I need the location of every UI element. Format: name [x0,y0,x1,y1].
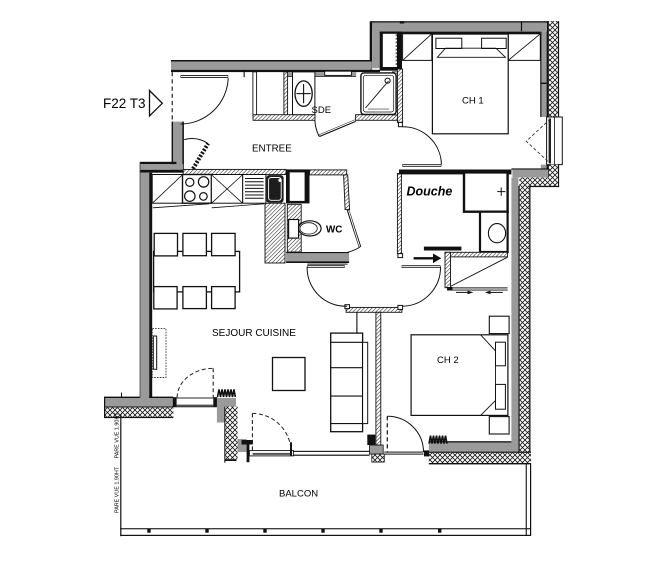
svg-text:PARE VUE 1.90HT: PARE VUE 1.90HT [115,412,121,459]
svg-text:F22 T3: F22 T3 [103,96,146,111]
svg-text:CH 2: CH 2 [437,355,459,366]
svg-text:CH 1: CH 1 [462,96,484,107]
svg-text:SEJOUR CUISINE: SEJOUR CUISINE [212,328,296,339]
svg-text:Douche: Douche [407,185,453,199]
svg-text:PARE VUE 1.90HT: PARE VUE 1.90HT [115,466,121,513]
svg-text:WC: WC [326,225,342,236]
svg-text:BALCON: BALCON [279,489,318,500]
svg-text:ENTREE: ENTREE [252,144,292,155]
svg-text:SDE: SDE [312,105,332,116]
